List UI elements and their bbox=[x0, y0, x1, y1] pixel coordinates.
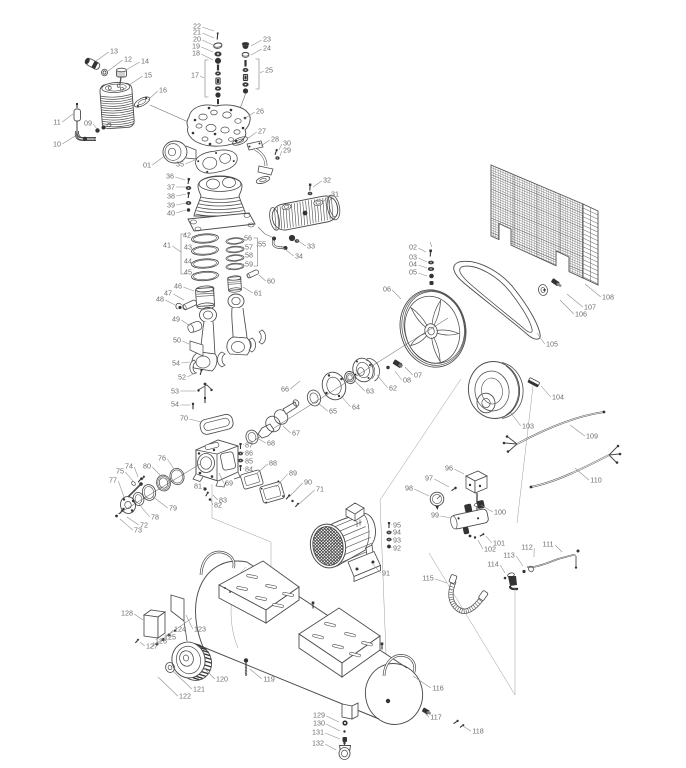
svg-text:107: 107 bbox=[584, 303, 596, 312]
svg-text:68: 68 bbox=[267, 439, 275, 448]
svg-text:128: 128 bbox=[121, 609, 133, 618]
svg-text:69: 69 bbox=[225, 479, 233, 488]
svg-text:108: 108 bbox=[602, 293, 614, 302]
svg-text:80: 80 bbox=[143, 462, 151, 471]
svg-text:77: 77 bbox=[109, 476, 117, 485]
svg-text:55: 55 bbox=[258, 240, 266, 249]
svg-text:48: 48 bbox=[156, 295, 164, 304]
svg-text:64: 64 bbox=[352, 403, 360, 412]
svg-text:34: 34 bbox=[295, 252, 303, 261]
svg-text:01: 01 bbox=[143, 161, 151, 170]
svg-text:32: 32 bbox=[323, 176, 331, 185]
svg-text:120: 120 bbox=[216, 675, 228, 684]
svg-text:11: 11 bbox=[53, 118, 60, 127]
svg-text:118: 118 bbox=[472, 727, 483, 736]
svg-text:89: 89 bbox=[289, 469, 297, 478]
svg-text:92: 92 bbox=[393, 544, 401, 553]
svg-text:109: 109 bbox=[586, 432, 598, 441]
svg-text:74: 74 bbox=[125, 462, 133, 471]
svg-text:96: 96 bbox=[445, 464, 453, 473]
svg-text:08: 08 bbox=[403, 376, 411, 385]
svg-text:37: 37 bbox=[167, 183, 175, 192]
svg-text:100: 100 bbox=[494, 508, 506, 517]
svg-text:110: 110 bbox=[590, 476, 601, 485]
svg-text:16: 16 bbox=[159, 86, 167, 95]
svg-text:83: 83 bbox=[219, 496, 227, 505]
svg-text:54: 54 bbox=[172, 359, 180, 368]
svg-text:52: 52 bbox=[178, 373, 186, 382]
svg-text:115: 115 bbox=[422, 574, 433, 583]
svg-text:17: 17 bbox=[191, 71, 199, 80]
svg-text:25: 25 bbox=[265, 66, 273, 75]
svg-text:47: 47 bbox=[164, 289, 172, 298]
svg-text:119: 119 bbox=[263, 675, 274, 684]
svg-text:09: 09 bbox=[84, 119, 92, 128]
svg-text:113: 113 bbox=[503, 551, 514, 560]
svg-text:36: 36 bbox=[166, 172, 174, 181]
svg-text:130: 130 bbox=[313, 719, 325, 728]
svg-text:65: 65 bbox=[329, 407, 337, 416]
svg-text:38: 38 bbox=[167, 192, 175, 201]
svg-text:50: 50 bbox=[173, 336, 181, 345]
svg-text:49: 49 bbox=[172, 315, 180, 324]
svg-text:13: 13 bbox=[110, 47, 118, 56]
svg-text:87: 87 bbox=[245, 441, 253, 450]
svg-text:102: 102 bbox=[484, 545, 496, 554]
svg-text:71: 71 bbox=[316, 485, 324, 494]
svg-text:02: 02 bbox=[409, 243, 417, 252]
svg-text:93: 93 bbox=[393, 536, 401, 545]
svg-text:81: 81 bbox=[194, 482, 202, 491]
svg-text:58: 58 bbox=[245, 251, 253, 260]
svg-text:12: 12 bbox=[124, 55, 132, 64]
svg-text:131: 131 bbox=[312, 728, 324, 737]
svg-text:90: 90 bbox=[304, 478, 312, 487]
svg-text:67: 67 bbox=[292, 429, 300, 438]
svg-text:62: 62 bbox=[389, 384, 397, 393]
svg-text:40: 40 bbox=[167, 209, 175, 218]
svg-text:76: 76 bbox=[158, 454, 166, 463]
svg-text:103: 103 bbox=[522, 422, 534, 431]
svg-text:10: 10 bbox=[53, 140, 61, 149]
svg-text:91: 91 bbox=[382, 569, 390, 578]
svg-text:116: 116 bbox=[432, 684, 443, 693]
svg-text:112: 112 bbox=[521, 543, 532, 552]
svg-text:59: 59 bbox=[245, 260, 253, 269]
svg-text:42: 42 bbox=[183, 231, 191, 240]
svg-text:95: 95 bbox=[393, 521, 401, 530]
svg-text:86: 86 bbox=[245, 449, 253, 458]
svg-text:127: 127 bbox=[146, 642, 158, 651]
svg-text:27: 27 bbox=[258, 127, 266, 136]
svg-text:79: 79 bbox=[169, 504, 177, 513]
svg-text:44: 44 bbox=[184, 257, 192, 266]
svg-text:24: 24 bbox=[263, 44, 271, 53]
svg-text:26: 26 bbox=[256, 107, 264, 116]
svg-text:29: 29 bbox=[283, 146, 291, 155]
svg-text:45: 45 bbox=[184, 268, 192, 277]
svg-text:15: 15 bbox=[144, 71, 152, 80]
svg-text:123: 123 bbox=[194, 625, 206, 634]
svg-text:06: 06 bbox=[383, 285, 391, 294]
svg-text:85: 85 bbox=[245, 457, 253, 466]
svg-text:61: 61 bbox=[254, 289, 262, 298]
svg-text:56: 56 bbox=[244, 234, 252, 243]
svg-text:28: 28 bbox=[271, 135, 279, 144]
svg-text:98: 98 bbox=[405, 484, 413, 493]
svg-text:66: 66 bbox=[281, 385, 289, 394]
svg-text:84: 84 bbox=[245, 465, 253, 474]
svg-text:31: 31 bbox=[331, 190, 339, 199]
svg-text:05: 05 bbox=[409, 268, 417, 277]
svg-text:60: 60 bbox=[267, 277, 275, 286]
svg-text:132: 132 bbox=[312, 739, 324, 748]
svg-text:07: 07 bbox=[414, 371, 422, 380]
svg-text:97: 97 bbox=[425, 474, 433, 483]
svg-text:111: 111 bbox=[543, 540, 554, 549]
svg-text:22: 22 bbox=[193, 22, 201, 31]
svg-text:104: 104 bbox=[552, 393, 564, 402]
svg-text:122: 122 bbox=[179, 692, 191, 701]
svg-text:88: 88 bbox=[269, 459, 277, 468]
svg-text:78: 78 bbox=[151, 513, 159, 522]
svg-text:99: 99 bbox=[431, 511, 439, 520]
svg-text:43: 43 bbox=[184, 243, 192, 252]
svg-text:54: 54 bbox=[171, 400, 179, 409]
svg-text:23: 23 bbox=[263, 35, 271, 44]
svg-text:70: 70 bbox=[180, 414, 188, 423]
svg-text:41: 41 bbox=[163, 241, 171, 250]
svg-text:117: 117 bbox=[430, 713, 441, 722]
svg-text:114: 114 bbox=[487, 560, 498, 569]
svg-text:63: 63 bbox=[366, 387, 374, 396]
svg-text:46: 46 bbox=[174, 282, 182, 291]
svg-text:75: 75 bbox=[116, 467, 124, 476]
svg-text:35: 35 bbox=[176, 160, 184, 169]
svg-text:121: 121 bbox=[193, 685, 205, 694]
svg-text:105: 105 bbox=[546, 340, 558, 349]
svg-text:33: 33 bbox=[307, 242, 315, 251]
svg-text:14: 14 bbox=[141, 57, 149, 66]
svg-text:73: 73 bbox=[134, 526, 142, 535]
svg-text:53: 53 bbox=[171, 387, 179, 396]
